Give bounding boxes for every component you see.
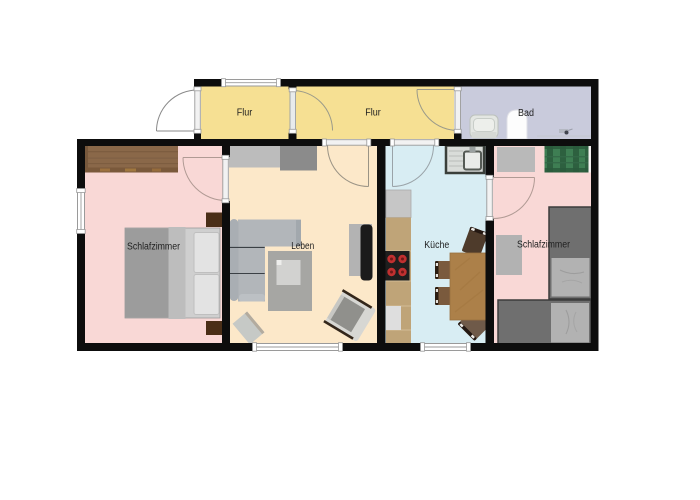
svg-text:Schlafzimmer: Schlafzimmer	[517, 240, 571, 251]
svg-text:Schlafzimmer: Schlafzimmer	[127, 241, 181, 252]
svg-text:Leben: Leben	[291, 241, 314, 252]
svg-text:Flur: Flur	[237, 108, 253, 119]
svg-text:Bad: Bad	[518, 108, 534, 119]
svg-text:Flur: Flur	[365, 108, 381, 119]
svg-text:Küche: Küche	[424, 240, 449, 251]
